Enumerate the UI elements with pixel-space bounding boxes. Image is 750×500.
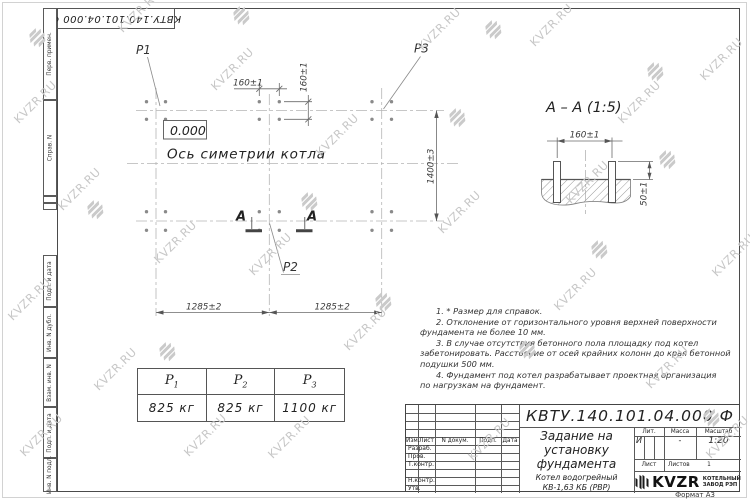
top-designation-box: КВТУ.140.101.04.000 Ф (57, 8, 175, 29)
strip-cell-podp-data-1: Подп. и дата (43, 255, 57, 307)
divider-line (654, 436, 655, 459)
note-line: фундамента не более 10 мм. (420, 327, 740, 338)
lit-value: И (634, 436, 644, 459)
row-nkontr: Н.контр. (406, 477, 438, 485)
divider-line (406, 429, 519, 430)
sheets-label: Листов (668, 461, 698, 469)
scale-header: Масштаб (696, 428, 741, 436)
title-block: КВТУ.140.101.04.000 Ф Изм. Лист N докум.… (405, 404, 740, 492)
row-tkontr: Т.контр. (406, 461, 438, 469)
document-title: Задание на установку фундамента (519, 428, 634, 472)
load-table: P1 P2 P3 825 кг 825 кг 1100 кг (137, 368, 345, 422)
logo-text: KVZR (652, 473, 700, 491)
col-header-izm: Изм. (406, 437, 418, 445)
col-header-ndoc: N докум. (435, 437, 475, 445)
load-table-header-p2: P2 (207, 369, 276, 395)
col-header-data: Дата (501, 437, 519, 445)
title-block-designation: КВТУ.140.101.04.000 Ф (519, 405, 741, 427)
col-header-list: Лист (418, 437, 435, 445)
strip-cell-podp-data-2: Подп. и дата (43, 407, 57, 458)
top-designation-text: КВТУ.140.101.04.000 Ф (50, 13, 181, 24)
strip-cell-sprav-n: Справ. N (43, 100, 57, 196)
product-name: Котел водогрейный КВ-1,63 КБ (РВР) (519, 471, 634, 495)
strip-cell-perv-primen: Перв. примен. (43, 8, 57, 100)
note-line: 3. В случае отсутствия бетонного пола пл… (420, 338, 740, 349)
note-line: 4. Фундамент под котел разрабатывает про… (420, 370, 740, 381)
strip-cell-vzam-inv: Взам. инв. N (43, 358, 57, 407)
load-table-header-p1: P1 (138, 369, 207, 395)
scale-value: 1:20 (696, 436, 741, 459)
divider-line (475, 405, 476, 493)
sheet-label: Лист (634, 461, 664, 469)
note-line: забетонировать. Расстояние от осей крайн… (420, 348, 740, 359)
notes-block: 1. * Размер для справок. 2. Отклонение о… (420, 306, 740, 391)
strip-cell-inv-dubl: Инв. N дубл. (43, 307, 57, 358)
row-razrab: Разраб. (406, 445, 438, 453)
row-utv: Утв. (406, 485, 438, 493)
note-line: 1. * Размер для справок. (420, 306, 740, 317)
load-table-value-p1: 825 кг (138, 395, 207, 421)
company-logo: KVZR КОТЕЛЬНЫЙ ЗАВОД РЭП (634, 471, 741, 493)
divider-line (501, 405, 502, 493)
kvzr-logo-mark-icon (634, 475, 650, 490)
sheets-value: 1 (702, 461, 716, 469)
col-header-podp: Подп. (475, 437, 501, 445)
note-line: по нагрузкам на фундамент. (420, 380, 740, 391)
drawing-sheet: P1 P3 P2 160±1 160±1 1400±3 1285±2 1285±… (0, 0, 750, 500)
load-table-value-p2: 825 кг (207, 395, 276, 421)
mass-value: - (664, 436, 696, 459)
load-table-header-p3: P3 (275, 369, 344, 395)
format-label: Формат А3 (650, 491, 740, 499)
divider-line (634, 459, 741, 460)
strip-cell-empty-1 (43, 196, 57, 203)
strip-cell-inv-podl: Инв. N подл. (43, 458, 57, 492)
divider-line (406, 421, 519, 422)
divider-line (406, 413, 519, 414)
logo-caption: КОТЕЛЬНЫЙ ЗАВОД РЭП (703, 476, 741, 488)
lit-header: Лит. (634, 428, 664, 436)
row-prov: Пров. (406, 453, 438, 461)
strip-cell-empty-2 (43, 203, 57, 210)
note-line: подушки 500 мм. (420, 359, 740, 370)
note-line: 2. Отклонение от горизонтального уровня … (420, 317, 740, 328)
load-table-value-p3: 1100 кг (275, 395, 344, 421)
divider-line (644, 436, 645, 459)
divider-line (406, 469, 519, 470)
mass-header: Масса (664, 428, 696, 436)
